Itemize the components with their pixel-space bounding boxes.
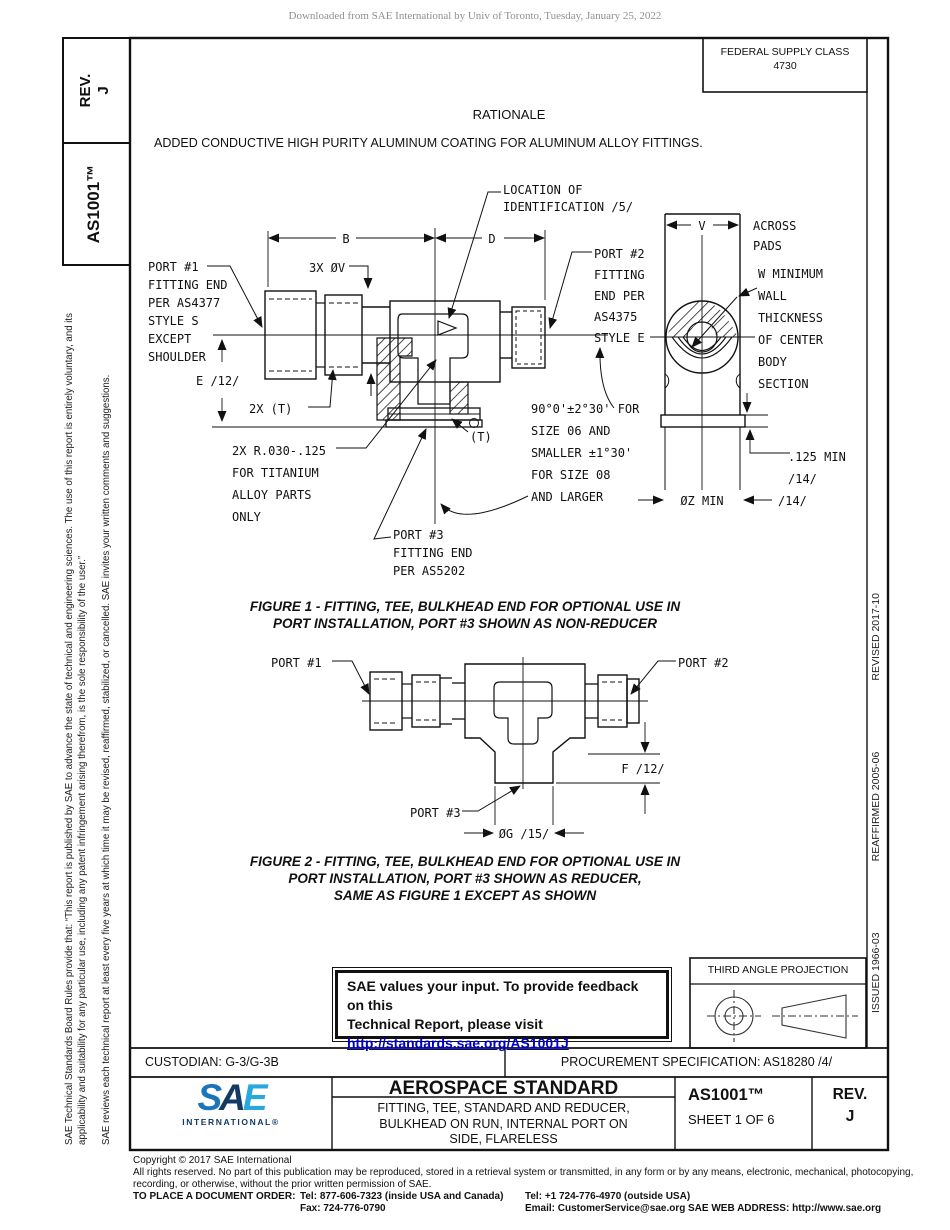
legal-paragraph-2: SAE reviews each technical report at lea… xyxy=(101,283,114,1145)
feedback-link[interactable]: http://standards.sae.org/AS1001J xyxy=(347,1035,569,1051)
doc-number-vertical: AS1001™ xyxy=(63,143,130,265)
fig1-label-thread-t: 2X (T) xyxy=(249,400,292,418)
order-tel-outside: Tel: +1 724-776-4970 (outside USA) xyxy=(525,1191,690,1203)
history-sidebar: ISSUED 1966-03 REAFFIRMED 2005-06 REVISE… xyxy=(870,593,888,1013)
feedback-box: SAE values your input. To provide feedba… xyxy=(332,967,672,1042)
logo-letter-a: A xyxy=(219,1077,243,1118)
fig1-label-angle-note: 90°0'±2°30' FOR SIZE 06 AND SMALLER ±1°3… xyxy=(531,398,639,508)
feedback-line1: SAE values your input. To provide feedba… xyxy=(347,977,657,1015)
fig2-label-port2: PORT #2 xyxy=(678,654,729,672)
issued-date: ISSUED 1966-03 xyxy=(870,932,888,1013)
rev-label-bottom: REV. xyxy=(812,1086,888,1104)
sheet-number: SHEET 1 OF 6 xyxy=(688,1112,774,1127)
fig2-label-port3: PORT #3 xyxy=(410,804,461,822)
rationale-text: ADDED CONDUCTIVE HIGH PURITY ALUMINUM CO… xyxy=(154,136,703,150)
rev-value: J xyxy=(95,38,113,143)
figure1-caption: FIGURE 1 - FITTING, TEE, BULKHEAD END FO… xyxy=(165,598,765,632)
fig1-dim-b: B xyxy=(338,230,354,248)
document-page: Downloaded from SAE International by Uni… xyxy=(0,0,950,1230)
doc-type-title: AEROSPACE STANDARD xyxy=(332,1078,675,1100)
download-watermark: Downloaded from SAE International by Uni… xyxy=(0,10,950,22)
fig2-label-port1: PORT #1 xyxy=(271,654,322,672)
fig2-dim-f: F /12/ xyxy=(612,760,674,778)
rev-box: REV. J xyxy=(63,38,130,143)
projection-title: THIRD ANGLE PROJECTION xyxy=(690,964,866,976)
doc-number: AS1001™ xyxy=(688,1086,764,1105)
sae-logo: SAE INTERNATIONAL® xyxy=(130,1080,332,1127)
fig1-dim-e: E /12/ xyxy=(196,372,239,390)
fig1-label-across-pads: ACROSS PADS xyxy=(753,216,796,256)
copyright-line: Copyright © 2017 SAE International xyxy=(133,1155,292,1167)
order-label: TO PLACE A DOCUMENT ORDER: xyxy=(133,1191,295,1203)
fig1-label-thread-count: 3X ØV xyxy=(309,259,345,277)
order-tel-inside: Tel: 877-606-7323 (inside USA and Canada… xyxy=(300,1191,503,1203)
feedback-line2: Technical Report, please visit xyxy=(347,1015,657,1034)
rights-line2: recording, or otherwise, without the pri… xyxy=(133,1179,431,1191)
fig1-label-port2: PORT #2 FITTING END PER AS4375 STYLE E xyxy=(594,244,645,349)
rationale-title: RATIONALE xyxy=(130,107,888,122)
fig1-label-location-id: LOCATION OF IDENTIFICATION /5/ xyxy=(503,182,633,216)
fig1-label-t-ref: (T) xyxy=(470,428,492,446)
revised-date: REVISED 2017-10 xyxy=(870,593,888,681)
rights-line1: All rights reserved. No part of this pub… xyxy=(133,1167,913,1179)
fig1-dim-z: ØZ MIN xyxy=(672,492,732,510)
legal-paragraph-1: SAE Technical Standards Board Rules prov… xyxy=(64,283,90,1145)
fig1-dim-d: D xyxy=(484,230,500,248)
fig2-dim-g: ØG /15/ xyxy=(494,825,554,843)
logo-letter-e: E xyxy=(243,1077,265,1118)
procurement-spec: PROCUREMENT SPECIFICATION: AS18280 /4/ xyxy=(505,1055,888,1069)
fig1-label-min-125: .125 MIN /14/ xyxy=(788,446,846,490)
fsc-value: 4730 xyxy=(703,60,867,72)
order-email: Email: CustomerService@sae.org xyxy=(525,1203,685,1215)
fig1-label-port3: PORT #3 FITTING END PER AS5202 xyxy=(393,526,472,580)
custodian: CUSTODIAN: G-3/G-3B xyxy=(145,1055,279,1069)
doc-subtitle: FITTING, TEE, STANDARD AND REDUCER, BULK… xyxy=(332,1101,675,1148)
fig1-dim-v: V xyxy=(694,217,710,235)
legal-sidebar: SAE Technical Standards Board Rules prov… xyxy=(64,283,128,1145)
fsc-label: FEDERAL SUPPLY CLASS xyxy=(703,46,867,58)
rev-value-bottom: J xyxy=(812,1108,888,1126)
logo-subtext: INTERNATIONAL® xyxy=(130,1117,332,1127)
web-address: SAE WEB ADDRESS: http://www.sae.org xyxy=(688,1203,881,1215)
fig1-label-port1: PORT #1 FITTING END PER AS4377 STYLE S E… xyxy=(148,258,227,366)
fig1-ref-14: /14/ xyxy=(778,492,807,510)
order-fax: Fax: 724-776-0790 xyxy=(300,1203,386,1215)
fig1-label-radius-note: 2X R.030-.125 FOR TITANIUM ALLOY PARTS O… xyxy=(232,440,326,528)
fig1-label-wall-note: W MINIMUM WALL THICKNESS OF CENTER BODY … xyxy=(758,263,823,395)
reaffirmed-date: REAFFIRMED 2005-06 xyxy=(870,752,888,862)
doc-number-box: AS1001™ xyxy=(63,143,130,265)
figure2-caption: FIGURE 2 - FITTING, TEE, BULKHEAD END FO… xyxy=(165,853,765,904)
rev-label: REV. xyxy=(77,38,95,143)
logo-letter-s: S xyxy=(197,1077,219,1118)
